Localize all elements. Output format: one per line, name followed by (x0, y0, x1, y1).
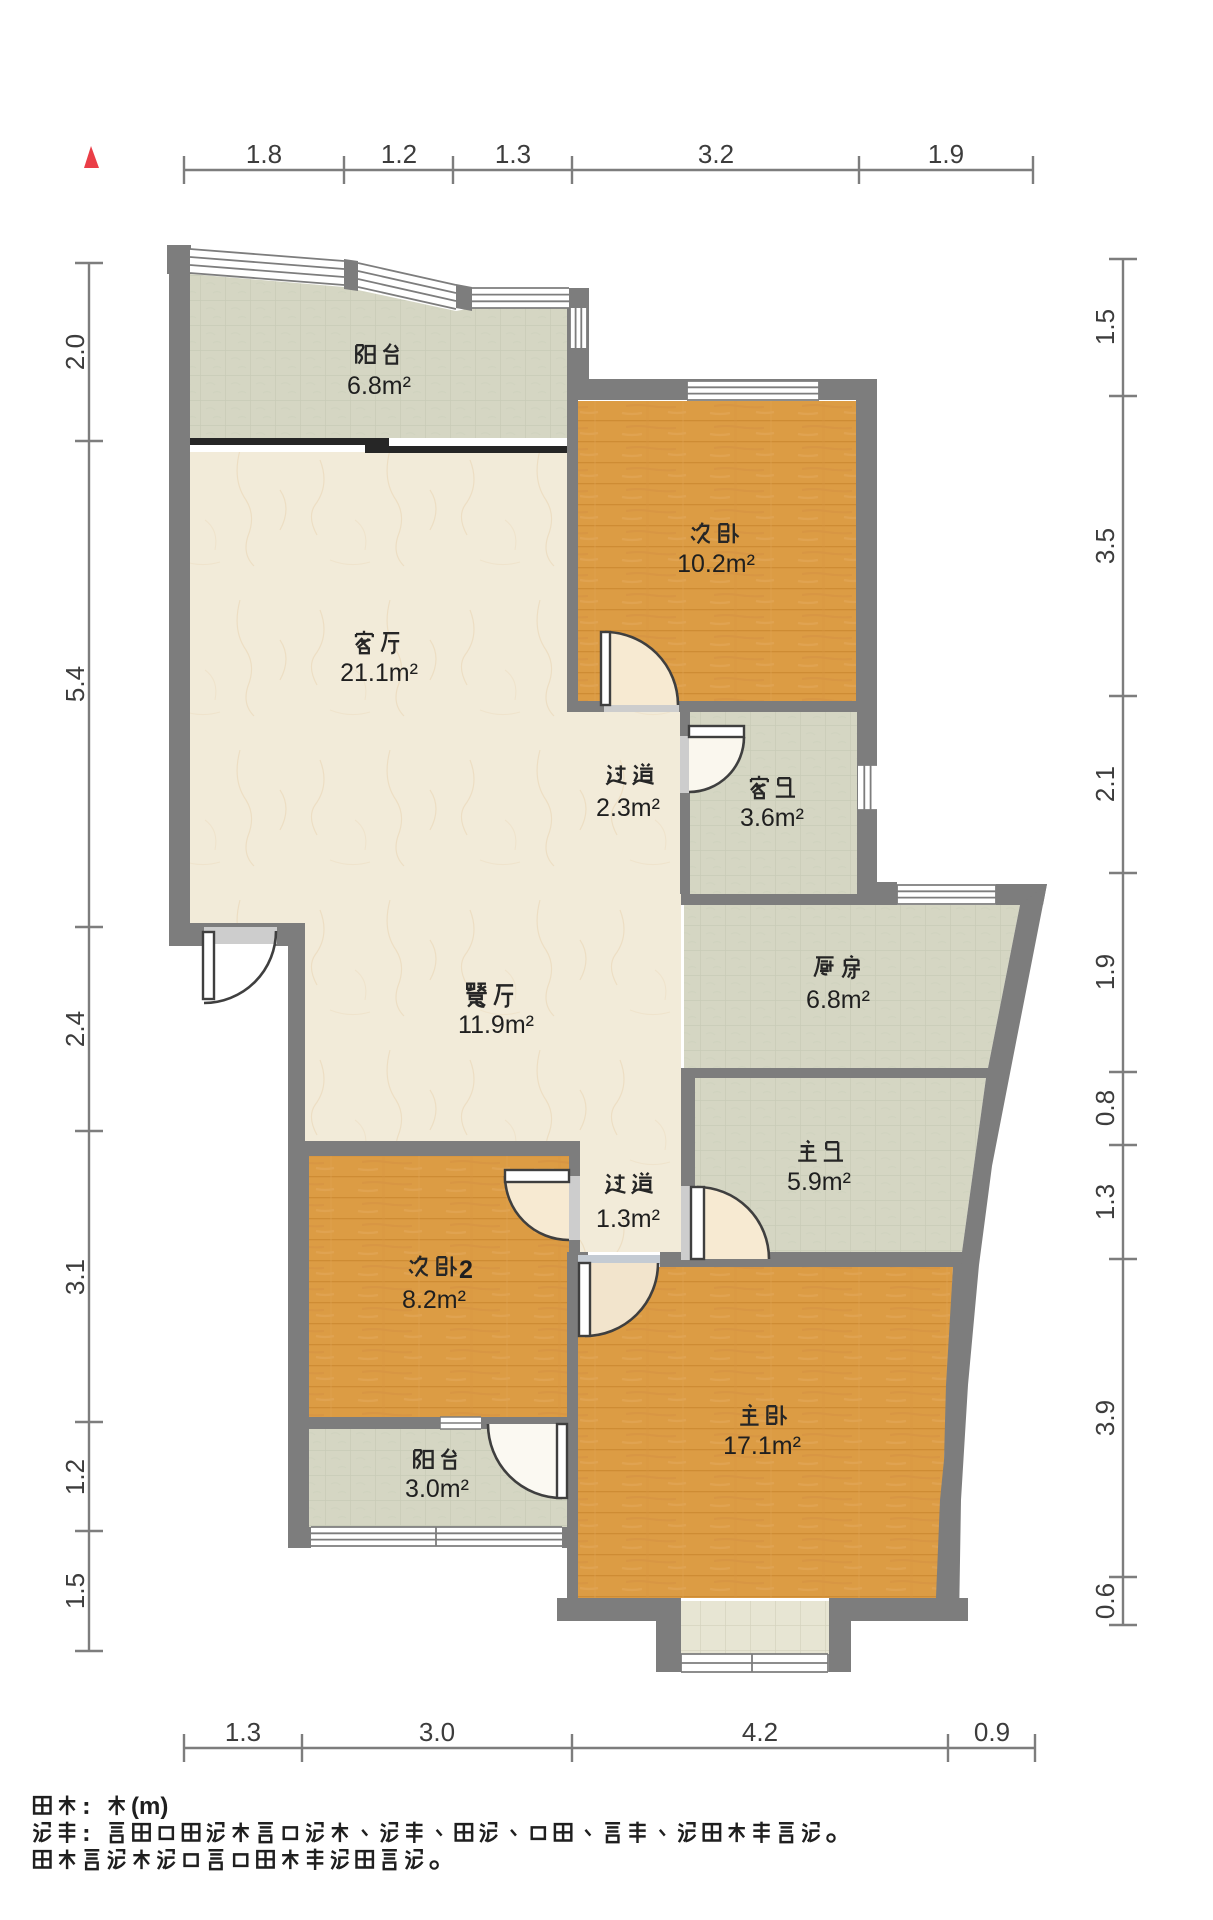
svg-text:2.3m²: 2.3m² (596, 794, 660, 822)
svg-text:11.9m²: 11.9m² (458, 1011, 534, 1039)
svg-text:4.2: 4.2 (742, 1717, 778, 1747)
svg-text:1.3: 1.3 (225, 1717, 261, 1747)
svg-text:3.5: 3.5 (1090, 528, 1120, 564)
svg-text:1.2: 1.2 (381, 139, 417, 169)
svg-text:2.1: 2.1 (1090, 766, 1120, 802)
svg-text:3.0: 3.0 (419, 1717, 455, 1747)
svg-text:10.2m²: 10.2m² (677, 550, 755, 578)
svg-text:1.8: 1.8 (246, 139, 282, 169)
svg-text:3.9: 3.9 (1090, 1400, 1120, 1436)
svg-text:6.8m²: 6.8m² (347, 372, 411, 400)
svg-text:1.5: 1.5 (60, 1573, 90, 1609)
svg-text:1.3m²: 1.3m² (596, 1205, 660, 1233)
svg-text:3.0m²: 3.0m² (405, 1475, 469, 1503)
svg-text:8.2m²: 8.2m² (402, 1286, 466, 1314)
svg-text:21.1m²: 21.1m² (340, 659, 418, 687)
svg-text:2: 2 (459, 1256, 473, 1284)
svg-text:17.1m²: 17.1m² (723, 1432, 801, 1460)
svg-text:3.1: 3.1 (60, 1259, 90, 1295)
svg-text:2.4: 2.4 (60, 1011, 90, 1047)
svg-text:0.9: 0.9 (974, 1717, 1010, 1747)
svg-text:1.9: 1.9 (1090, 954, 1120, 990)
svg-text:5.9m²: 5.9m² (787, 1168, 851, 1196)
svg-text:2.0: 2.0 (60, 334, 90, 370)
svg-text:3.6m²: 3.6m² (740, 804, 804, 832)
svg-text:1.9: 1.9 (928, 139, 964, 169)
svg-text:1.3: 1.3 (1090, 1184, 1120, 1220)
svg-text:6.8m²: 6.8m² (806, 986, 870, 1014)
svg-text:(m): (m) (131, 1793, 168, 1820)
svg-text:5.4: 5.4 (60, 666, 90, 702)
svg-text:1.5: 1.5 (1090, 309, 1120, 345)
svg-text:1.3: 1.3 (495, 139, 531, 169)
svg-text:3.2: 3.2 (698, 139, 734, 169)
svg-text:0.8: 0.8 (1090, 1090, 1120, 1126)
svg-text:0.6: 0.6 (1090, 1583, 1120, 1619)
svg-text:1.2: 1.2 (60, 1459, 90, 1495)
